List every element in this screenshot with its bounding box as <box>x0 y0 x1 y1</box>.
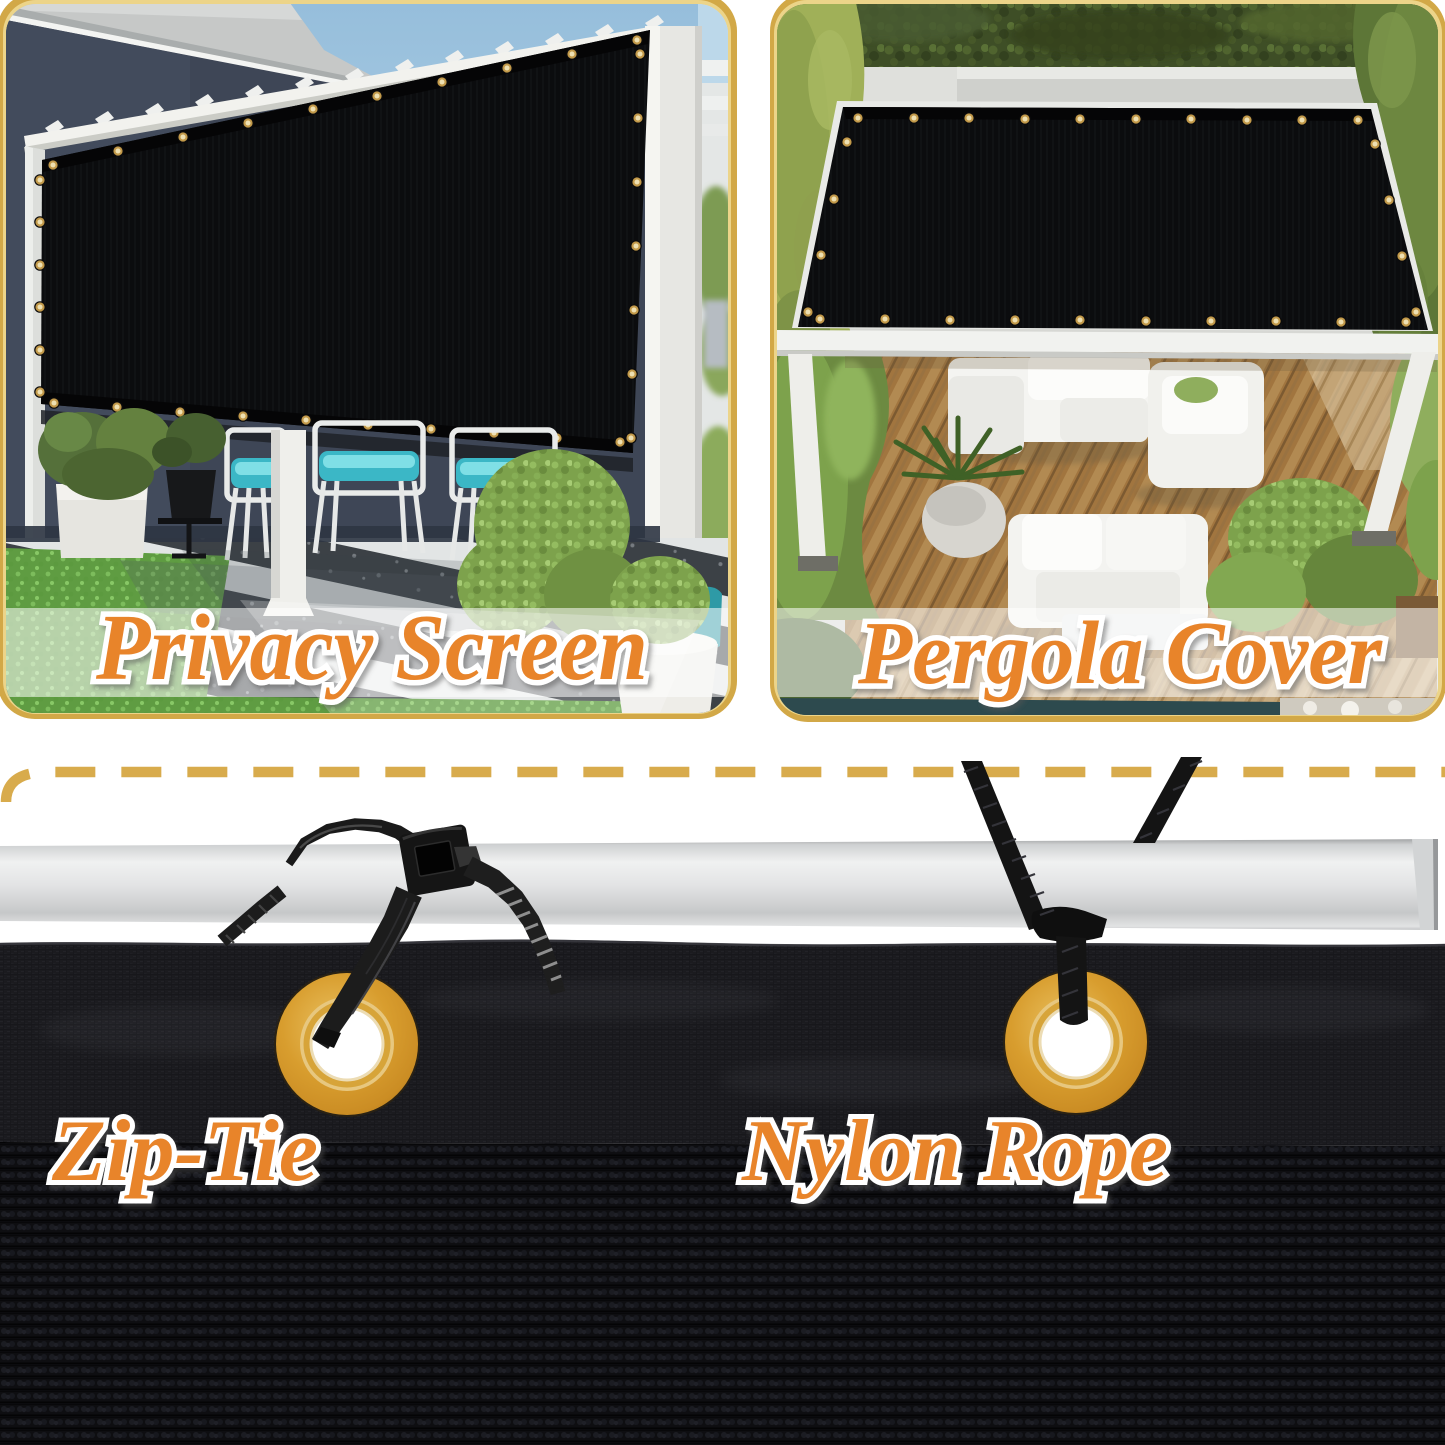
svg-text:Pergola Cover: Pergola Cover <box>857 604 1383 703</box>
svg-text:Nylon Rope: Nylon Rope <box>741 1103 1168 1200</box>
svg-text:Zip-Tie: Zip-Tie <box>51 1103 318 1200</box>
svg-text:Privacy Screen: Privacy Screen <box>95 596 648 700</box>
